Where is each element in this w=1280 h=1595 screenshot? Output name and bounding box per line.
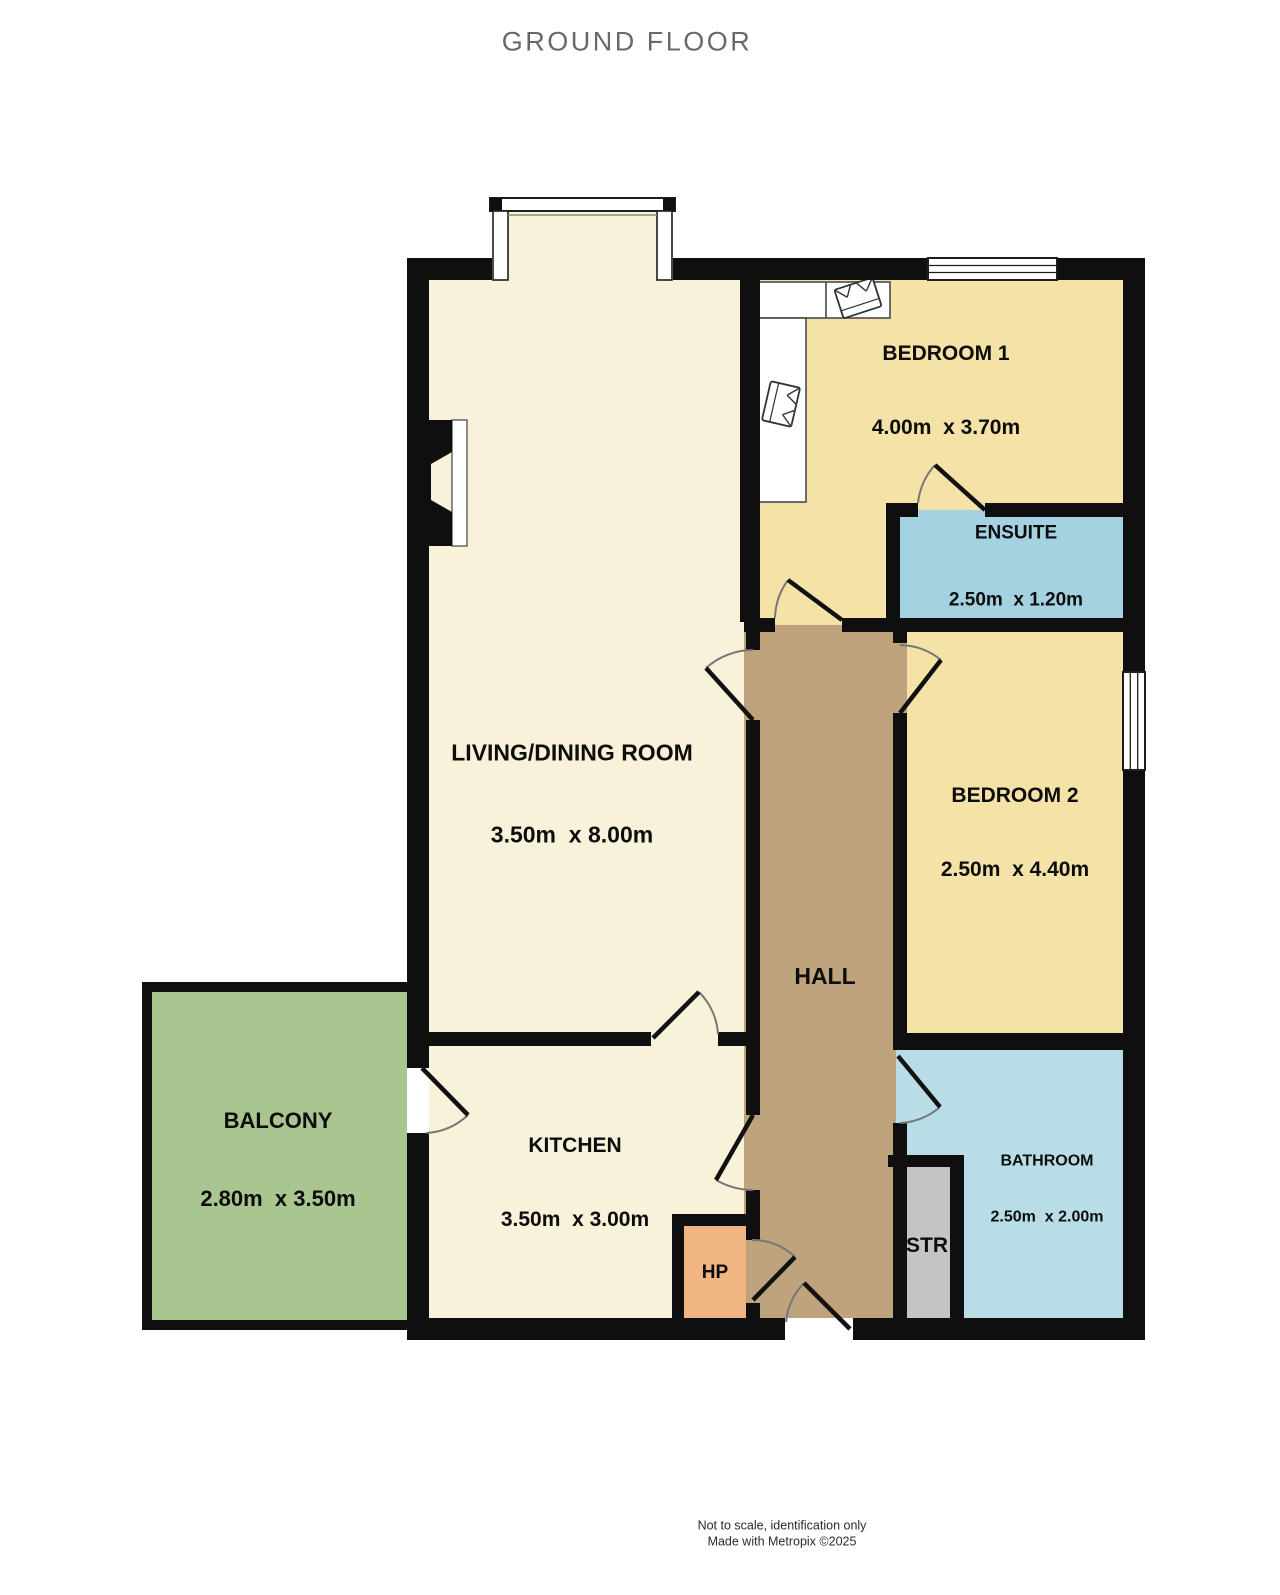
hp-label: HP (702, 1217, 728, 1329)
room-name: KITCHEN (501, 1133, 649, 1158)
room-dims: 2.50m x 4.40m (941, 858, 1089, 883)
room-dims: 3.50m x 3.00m (501, 1208, 649, 1233)
bedroom1-label: BEDROOM 1 4.00m x 3.70m (872, 292, 1020, 490)
room-name: BATHROOM (991, 1152, 1104, 1171)
room-name: BALCONY (200, 1108, 355, 1134)
disclaimer-line1: Not to scale, identification only (698, 1518, 867, 1534)
room-name: BEDROOM 2 (941, 783, 1089, 808)
balcony-door-opening (407, 1068, 429, 1133)
ensuite-label: ENSUITE 2.50m x 1.20m (949, 477, 1083, 656)
room-dims: 2.50m x 2.00m (991, 1209, 1104, 1228)
room-name: BEDROOM 1 (872, 341, 1020, 366)
living-room-area (428, 280, 754, 1034)
bathroom-label: BATHROOM 2.50m x 2.00m (991, 1115, 1104, 1266)
page-title: GROUND FLOOR (502, 27, 753, 58)
room-name: HALL (794, 963, 855, 990)
room-name: ENSUITE (949, 522, 1083, 544)
disclaimer: Not to scale, identification only Made w… (698, 1518, 867, 1549)
room-dims: 3.50m x 8.00m (451, 821, 693, 848)
bedroom2-label: BEDROOM 2 2.50m x 4.40m (941, 734, 1089, 932)
bedroom1-window (928, 258, 1057, 280)
fireplace-hearth (452, 420, 467, 546)
ground-floor-plan: GROUND FLOOR LIVING/DINING ROOM 3.50m x … (0, 0, 1280, 1595)
room-dims: 2.80m x 3.50m (200, 1186, 355, 1212)
living-room-label: LIVING/DINING ROOM 3.50m x 8.00m (451, 686, 693, 903)
room-dims: 4.00m x 3.70m (872, 416, 1020, 441)
str-label: STR (906, 1184, 948, 1308)
room-dims: 2.50m x 1.20m (949, 589, 1083, 611)
balcony-label: BALCONY 2.80m x 3.50m (200, 1056, 355, 1264)
bedroom2-window (1123, 672, 1145, 770)
disclaimer-line2: Made with Metropix ©2025 (698, 1534, 867, 1550)
room-name: HP (702, 1262, 728, 1284)
room-name: LIVING/DINING ROOM (451, 740, 693, 767)
kitchen-label: KITCHEN 3.50m x 3.00m (501, 1084, 649, 1282)
living-bay-area (506, 212, 660, 282)
hall-label: HALL (794, 909, 855, 1045)
room-name: STR (906, 1234, 948, 1259)
